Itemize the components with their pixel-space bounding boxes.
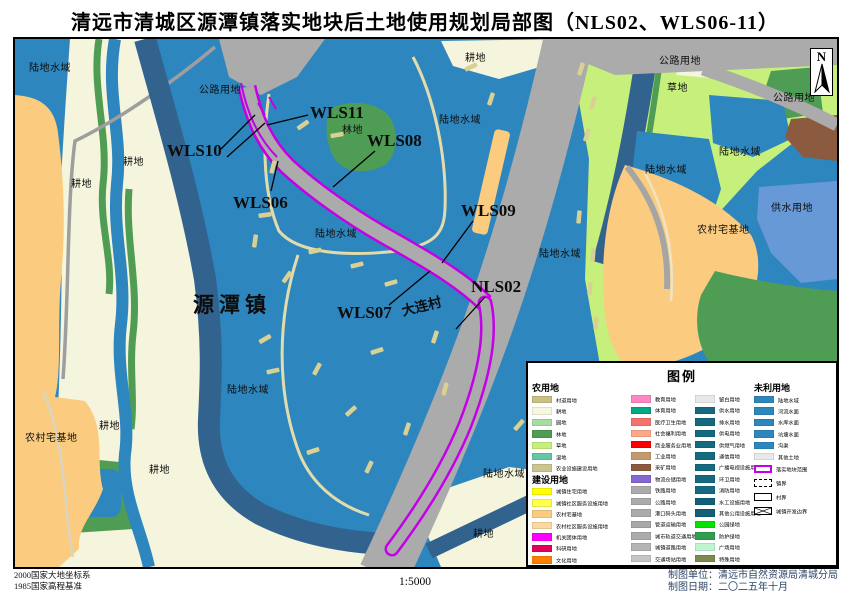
legend-boundary-label: 城镇开发边界: [776, 507, 807, 515]
legend-swatch: [695, 532, 715, 540]
legend-section-header: 建设用地: [532, 474, 621, 486]
legend-item-label: 消防用地: [719, 486, 740, 494]
legend-item-label: 管道运输用地: [655, 520, 686, 528]
legend-item: 河流水面: [754, 405, 815, 416]
legend-item: 草地: [532, 440, 621, 451]
legend-swatch: [532, 407, 552, 415]
legend-item-label: 耕地: [556, 407, 566, 415]
legend-boundary-label: 镇界: [776, 479, 786, 487]
legend-item-label: 园地: [556, 418, 566, 426]
legend-item: 机关团体用地: [532, 531, 621, 542]
legend-item-label: 城镇社区服务设施用地: [556, 499, 608, 507]
legend-item-label: 供燃气用地: [719, 441, 745, 449]
legend-item-label: 港口码头用地: [655, 509, 686, 517]
legend-item-label: 城镇道路用地: [655, 543, 686, 551]
legend-swatch: [532, 533, 552, 541]
legend-swatch: [532, 510, 552, 518]
legend-swatch: [532, 545, 552, 553]
legend-section-header: 未利用地: [754, 382, 815, 394]
legend-item-label: 河流水面: [778, 407, 799, 415]
legend-item-label: 坑塘水面: [778, 430, 799, 438]
legend-item: 沟渠: [754, 440, 815, 451]
legend-swatch: [631, 464, 651, 472]
legend-item: 农村社区服务设施用地: [532, 520, 621, 531]
legend-item-label: 草地: [556, 441, 566, 449]
legend-item: 公园绿地: [695, 519, 771, 530]
legend-swatch: [631, 418, 651, 426]
page-title: 清远市清城区源潭镇落实地块后土地使用规划局部图（NLS02、WLS06-11）: [0, 6, 850, 35]
legend-swatch: [532, 556, 552, 564]
legend-swatch: [754, 430, 774, 438]
legend-item: 防护绿地: [695, 530, 771, 541]
legend-swatch: [532, 442, 552, 450]
legend-swatch: [754, 453, 774, 461]
legend-item-label: 商业服务业用地: [655, 441, 691, 449]
legend-swatch: [695, 555, 715, 563]
legend-item: 广场用地: [695, 541, 771, 552]
map-frame: 陆地水域耕地耕地公路用地林地陆地水域耕地陆地水域陆地水域公路用地草地公路用地陆地…: [13, 37, 839, 569]
legend-item: 陆地水域: [754, 394, 815, 405]
legend-item: 城镇社区服务设施用地: [532, 497, 621, 508]
legend-swatch: [532, 453, 552, 461]
legend-swatch: [631, 486, 651, 494]
legend-item-label: 社会福利用地: [655, 429, 686, 437]
legend-boundary-label: 落实地块范围: [776, 465, 807, 473]
legend-swatch: [631, 498, 651, 506]
legend-swatch: [695, 441, 715, 449]
legend-item-label: 农村宅基地: [556, 510, 582, 518]
legend-item: 林地: [532, 428, 621, 439]
legend-item-label: 城镇住宅用地: [556, 487, 587, 495]
map-scale: 1:5000: [340, 576, 490, 588]
legend-swatch: [532, 522, 552, 530]
legend-swatch: [631, 555, 651, 563]
legend-item: 文化用地: [532, 554, 621, 565]
legend-item-label: 公园绿地: [719, 520, 740, 528]
legend-item-label: 广场用地: [719, 543, 740, 551]
credit-line1: 制图单位：清远市自然资源局清城分局: [668, 570, 838, 582]
legend-item-label: 湿地: [556, 453, 566, 461]
legend-item: 水库水面: [754, 417, 815, 428]
legend-swatch: [631, 395, 651, 403]
legend-boundary-item: 落实地块范围: [754, 462, 815, 476]
legend-item-label: 防护绿地: [719, 532, 740, 540]
credit-line2: 制图日期：二〇二五年十月: [668, 582, 838, 594]
legend-swatch: [695, 521, 715, 529]
legend-swatch: [695, 498, 715, 506]
legend-item: 农村宅基地: [532, 509, 621, 520]
legend-item-label: 医疗卫生用地: [655, 418, 686, 426]
development-cross-symbol: [754, 507, 772, 515]
legend-item-label: 通信用地: [719, 452, 740, 460]
legend-swatch: [754, 442, 774, 450]
legend-item-label: 采矿用地: [655, 463, 676, 471]
legend-swatch: [695, 407, 715, 415]
legend-item-label: 公路用地: [655, 498, 676, 506]
legend-swatch: [695, 452, 715, 460]
datum-line2: 1985国家高程基准: [14, 581, 91, 592]
legend-item-label: 留白用地: [719, 395, 740, 403]
legend-item: 农业设施建设用地: [532, 462, 621, 473]
legend-item-label: 陆地水域: [778, 396, 799, 404]
legend-swatch: [532, 430, 552, 438]
legend: 图例 农用地村道用地耕地园地林地草地湿地农业设施建设用地建设用地城镇住宅用地城镇…: [526, 361, 838, 567]
north-arrow-needle: [812, 63, 832, 93]
legend-swatch: [695, 430, 715, 438]
legend-item: 其他土地: [754, 451, 815, 462]
legend-item-label: 村道用地: [556, 396, 577, 404]
legend-swatch: [532, 488, 552, 496]
legend-item-label: 农业设施建设用地: [556, 464, 598, 472]
legend-swatch: [754, 407, 774, 415]
datum-note: 2000国家大地坐标系 1985国家高程基准: [14, 570, 91, 592]
planning-map-page: 清远市清城区源潭镇落实地块后土地使用规划局部图（NLS02、WLS06-11）: [0, 0, 850, 600]
legend-item-label: 科研用地: [556, 544, 577, 552]
legend-swatch: [695, 475, 715, 483]
parcel-symbol: [754, 465, 772, 473]
legend-item: 园地: [532, 417, 621, 428]
legend-item-label: 环卫用地: [719, 475, 740, 483]
legend-swatch: [631, 407, 651, 415]
legend-item-label: 农村社区服务设施用地: [556, 522, 608, 530]
village-solid-symbol: [754, 493, 772, 501]
legend-swatch: [532, 499, 552, 507]
legend-boundary-label: 村界: [776, 493, 786, 501]
legend-swatch: [631, 509, 651, 517]
legend-swatch: [532, 419, 552, 427]
north-arrow: N: [810, 48, 833, 96]
legend-swatch: [695, 509, 715, 517]
legend-item-label: 教育用地: [655, 395, 676, 403]
legend-item-label: 排水用地: [719, 418, 740, 426]
legend-swatch: [695, 543, 715, 551]
legend-swatch: [695, 486, 715, 494]
legend-item-label: 文化用地: [556, 556, 577, 564]
legend-swatch: [695, 464, 715, 472]
legend-item-label: 水库水面: [778, 418, 799, 426]
legend-item: 科研用地: [532, 543, 621, 554]
legend-swatch: [754, 419, 774, 427]
legend-item-label: 体育用地: [655, 406, 676, 414]
legend-boundary-item: 城镇开发边界: [754, 504, 815, 518]
credit-note: 制图单位：清远市自然资源局清城分局 制图日期：二〇二五年十月: [668, 570, 838, 593]
legend-column: 未利用地陆地水域河流水面水库水面坑塘水面沟渠其他土地落实地块范围镇界村界城镇开发…: [754, 382, 815, 518]
legend-boundary-item: 镇界: [754, 476, 815, 490]
legend-swatch: [532, 396, 552, 404]
legend-section-header: 农用地: [532, 382, 621, 394]
legend-item: 城镇住宅用地: [532, 486, 621, 497]
legend-item-label: 物流仓储用地: [655, 475, 686, 483]
legend-item-label: 工业用地: [655, 452, 676, 460]
legend-item: 坑塘水面: [754, 428, 815, 439]
legend-item-label: 铁路用地: [655, 486, 676, 494]
legend-item-label: 交通场站用地: [655, 555, 686, 563]
legend-item-label: 水工设施用地: [719, 498, 750, 506]
legend-item-label: 特殊用地: [719, 555, 740, 563]
legend-swatch: [631, 441, 651, 449]
legend-item-label: 机关团体用地: [556, 533, 587, 541]
legend-item-label: 供水用地: [719, 406, 740, 414]
legend-item: 湿地: [532, 451, 621, 462]
legend-swatch: [695, 395, 715, 403]
legend-item: 村道用地: [532, 394, 621, 405]
legend-swatch: [631, 521, 651, 529]
legend-item-label: 其他土地: [778, 453, 799, 461]
legend-swatch: [532, 464, 552, 472]
legend-boundary-item: 村界: [754, 490, 815, 504]
legend-item: 特殊用地: [695, 553, 771, 564]
legend-swatch: [695, 418, 715, 426]
datum-line1: 2000国家大地坐标系: [14, 570, 91, 581]
legend-swatch: [754, 396, 774, 404]
legend-item-label: 沟渠: [778, 441, 788, 449]
legend-swatch: [631, 452, 651, 460]
town-dashed-symbol: [754, 479, 772, 487]
north-arrow-label: N: [811, 50, 832, 63]
legend-swatch: [631, 430, 651, 438]
legend-swatch: [631, 543, 651, 551]
legend-item-label: 城市轨道交通用地: [655, 532, 697, 540]
legend-item: 耕地: [532, 405, 621, 416]
legend-item-label: 林地: [556, 430, 566, 438]
legend-swatch: [631, 532, 651, 540]
legend-column: 农用地村道用地耕地园地林地草地湿地农业设施建设用地建设用地城镇住宅用地城镇社区服…: [532, 382, 621, 565]
legend-item-label: 供电用地: [719, 429, 740, 437]
legend-swatch: [631, 475, 651, 483]
